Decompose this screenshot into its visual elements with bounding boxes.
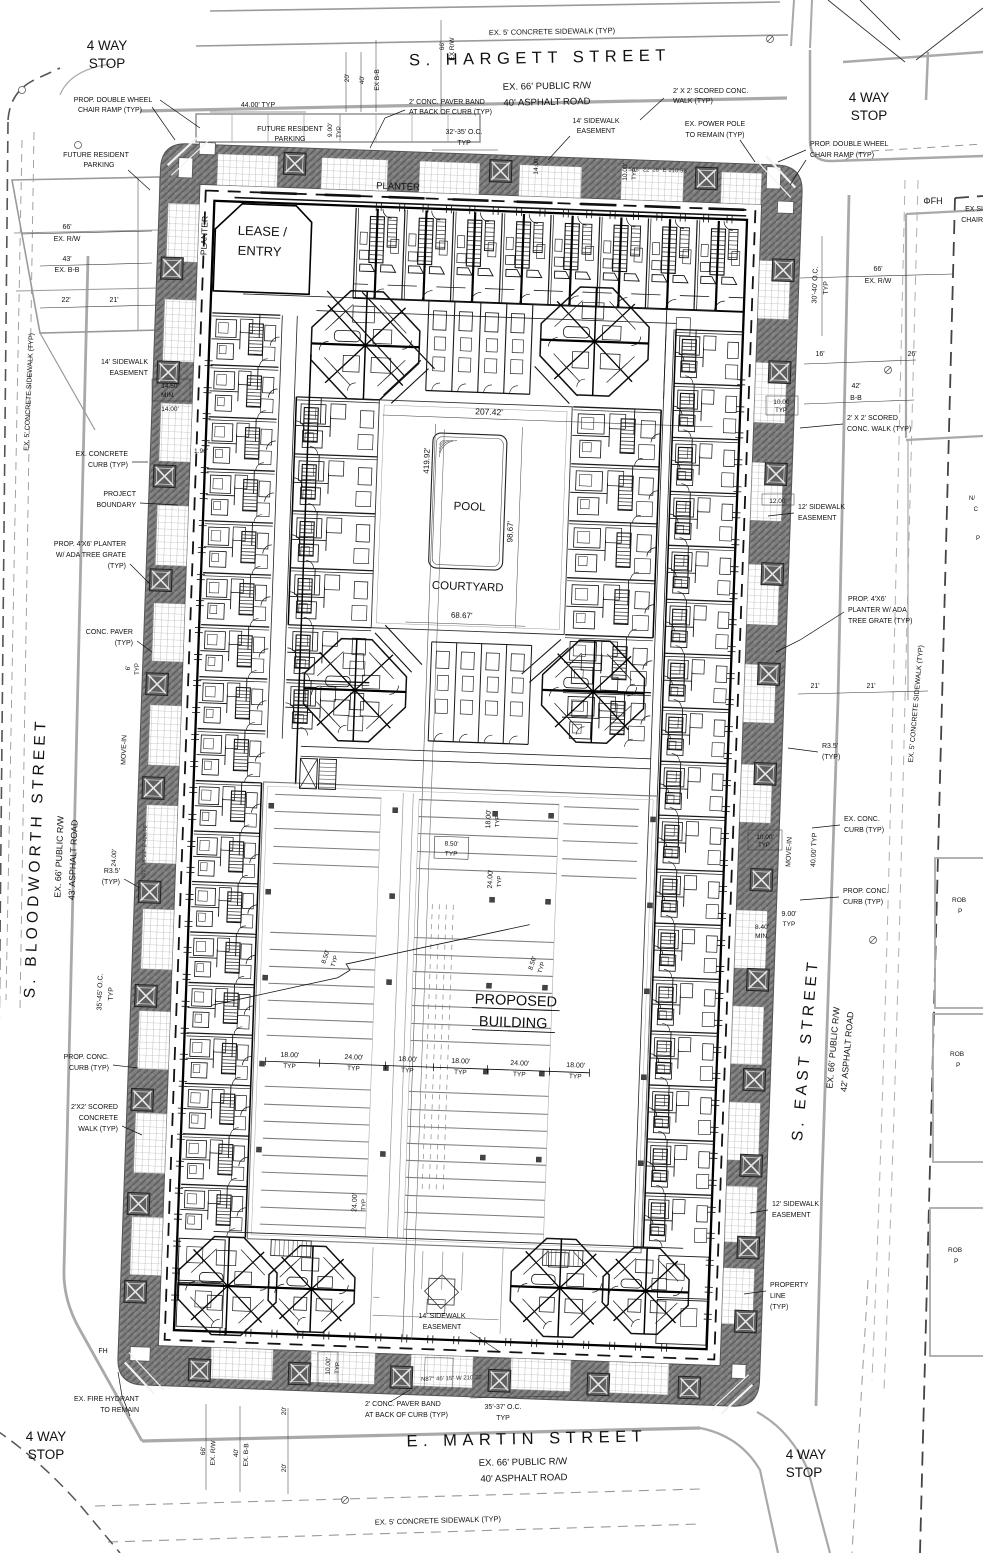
svg-text:4 WAY: 4 WAY [849, 90, 890, 105]
svg-text:2' CONC. PAVER BAND: 2' CONC. PAVER BAND [365, 1401, 441, 1408]
svg-text:R3.5': R3.5' [104, 868, 120, 875]
svg-text:(TYP): (TYP) [102, 879, 120, 886]
svg-text:EX SI: EX SI [965, 206, 983, 213]
svg-text:1.96': 1.96' [194, 448, 208, 455]
svg-text:POOL: POOL [453, 501, 486, 514]
svg-text:BUILDING: BUILDING [479, 1014, 548, 1032]
svg-text:P: P [958, 908, 962, 915]
svg-text:CONC. WALK (TYP): CONC. WALK (TYP) [847, 426, 911, 433]
svg-text:MOVE-IN: MOVE-IN [120, 735, 128, 765]
svg-text:40' ASPHALT ROAD: 40' ASPHALT ROAD [503, 96, 590, 109]
svg-text:EX. 66' PUBLIC R/W: EX. 66' PUBLIC R/W [503, 80, 592, 93]
svg-text:PROPERTY: PROPERTY [770, 1282, 809, 1289]
svg-text:32'-35' O.C.: 32'-35' O.C. [446, 129, 483, 136]
svg-text:PROP. CONC.: PROP. CONC. [843, 888, 888, 895]
svg-text:TREE GRATE (TYP): TREE GRATE (TYP) [848, 618, 912, 625]
svg-text:B-B: B-B [850, 395, 862, 402]
svg-text:21': 21' [109, 297, 118, 304]
svg-text:TYP: TYP [513, 1071, 526, 1078]
svg-text:PROP. 4'X6' PLANTER: PROP. 4'X6' PLANTER [54, 541, 126, 548]
svg-text:12' SIDEWALK: 12' SIDEWALK [798, 504, 845, 511]
svg-text:TYP: TYP [445, 851, 458, 858]
svg-text:CURB (TYP): CURB (TYP) [843, 899, 883, 906]
svg-text:40': 40' [359, 76, 366, 84]
svg-text:AT BACK OF CURB (TYP): AT BACK OF CURB (TYP) [409, 109, 492, 116]
svg-text:STOP: STOP [786, 1465, 823, 1480]
svg-text:LEASE /: LEASE / [238, 223, 288, 240]
svg-text:TYP: TYP [823, 281, 830, 295]
svg-text:4 WAY: 4 WAY [786, 1447, 827, 1462]
svg-text:66': 66' [439, 42, 446, 50]
svg-text:CONCRETE: CONCRETE [79, 1115, 119, 1122]
svg-text:PROJECT: PROJECT [103, 491, 136, 498]
svg-text:TO REMAIN (TYP): TO REMAIN (TYP) [686, 132, 745, 139]
svg-text:20': 20' [281, 1464, 288, 1473]
svg-text:9.00': 9.00' [327, 123, 334, 137]
svg-text:N/: N/ [969, 496, 975, 502]
svg-text:COURTYARD: COURTYARD [432, 580, 504, 595]
svg-text:18.00': 18.00' [280, 1052, 299, 1060]
svg-text:TYP: TYP [347, 1065, 360, 1072]
svg-text:14.50': 14.50' [161, 383, 179, 390]
svg-text:8.40': 8.40' [755, 924, 769, 931]
svg-text:14' SIDEWALK: 14' SIDEWALK [573, 118, 620, 125]
svg-text:26': 26' [907, 351, 916, 358]
svg-text:24.00': 24.00' [351, 1193, 359, 1212]
svg-text:CHAIR RAMP (TYP): CHAIR RAMP (TYP) [78, 107, 142, 114]
svg-text:WALK (TYP): WALK (TYP) [78, 1126, 118, 1133]
svg-text:PROP. DOUBLE WHEEL: PROP. DOUBLE WHEEL [810, 141, 889, 148]
svg-text:10.00': 10.00' [325, 1357, 333, 1375]
svg-text:419.92': 419.92' [422, 447, 432, 474]
svg-text:EX R/W: EX R/W [449, 37, 456, 61]
svg-text:66': 66' [62, 224, 71, 231]
svg-text:10.00': 10.00' [773, 399, 791, 406]
svg-text:EX. POWER POLE: EX. POWER POLE [685, 121, 746, 128]
svg-text:MIN.: MIN. [161, 392, 175, 399]
svg-text:35'-37' O.C.: 35'-37' O.C. [485, 1404, 522, 1411]
svg-text:PLANTER W/ ADA: PLANTER W/ ADA [848, 607, 907, 614]
svg-text:98.67': 98.67' [505, 520, 515, 542]
svg-text:PARKING: PARKING [275, 136, 306, 143]
svg-text:16': 16' [815, 351, 824, 358]
svg-text:40' ASPHALT ROAD: 40' ASPHALT ROAD [480, 1472, 567, 1485]
svg-text:20': 20' [344, 74, 351, 82]
svg-text:30'-40' O.C.: 30'-40' O.C. [811, 266, 819, 303]
svg-text:(TYP): (TYP) [822, 754, 840, 761]
svg-text:44.00' TYP: 44.00' TYP [241, 102, 276, 109]
svg-text:12.00': 12.00' [769, 498, 787, 505]
svg-text:21': 21' [810, 683, 819, 690]
svg-text:EASEMENT: EASEMENT [423, 1324, 462, 1331]
svg-text:W/ ADA TREE GRATE: W/ ADA TREE GRATE [56, 552, 126, 559]
svg-text:PROP. CONC.: PROP. CONC. [64, 1054, 109, 1061]
svg-text:40': 40' [233, 1449, 240, 1458]
svg-text:CHAIR RAMP (TYP): CHAIR RAMP (TYP) [810, 152, 874, 159]
svg-text:2' X 2' SCORED CONC.: 2' X 2' SCORED CONC. [673, 88, 748, 95]
svg-text:42': 42' [851, 383, 860, 390]
svg-text:12' SIDEWALK: 12' SIDEWALK [772, 1201, 819, 1208]
svg-text:TYP: TYP [361, 1199, 367, 1211]
svg-text:EX. CONCRETE: EX. CONCRETE [75, 451, 128, 458]
svg-text:FUTURE RESIDENT: FUTURE RESIDENT [63, 152, 129, 159]
svg-text:9.00': 9.00' [782, 911, 797, 918]
svg-text:CURB (TYP): CURB (TYP) [844, 827, 884, 834]
svg-text:TYP: TYP [775, 408, 787, 414]
svg-text:LINE: LINE [770, 1293, 786, 1300]
svg-text:(TYP): (TYP) [115, 640, 133, 647]
svg-text:TYP: TYP [783, 921, 796, 928]
svg-text:2' X 2' SCORED: 2' X 2' SCORED [847, 415, 898, 422]
svg-text:4 WAY: 4 WAY [87, 38, 128, 53]
svg-text:PLANTER: PLANTER [198, 216, 209, 256]
svg-text:EX. B-B: EX. B-B [55, 267, 80, 274]
svg-text:6': 6' [126, 666, 132, 670]
svg-text:STOP: STOP [89, 56, 126, 71]
svg-text:BOUNDARY: BOUNDARY [96, 502, 136, 509]
svg-text:14.00': 14.00' [161, 406, 179, 413]
svg-text:207.42': 207.42' [475, 406, 503, 417]
svg-text:ENTRY: ENTRY [237, 243, 282, 260]
svg-text:EASEMENT: EASEMENT [772, 1212, 811, 1219]
svg-text:(TYP): (TYP) [770, 1304, 788, 1311]
svg-text:EX. FIRE HYDRANT: EX. FIRE HYDRANT [74, 1396, 140, 1403]
svg-text:TYP: TYP [569, 1073, 582, 1080]
svg-text:14' SIDEWALK: 14' SIDEWALK [101, 359, 148, 366]
svg-text:4 WAY: 4 WAY [26, 1429, 67, 1444]
svg-text:2' CONC. PAVER BAND: 2' CONC. PAVER BAND [409, 99, 485, 106]
svg-text:P: P [976, 536, 980, 542]
svg-text:TO REMAIN: TO REMAIN [100, 1407, 139, 1414]
svg-text:FH: FH [98, 1348, 107, 1355]
svg-text:EASEMENT: EASEMENT [109, 370, 148, 377]
svg-text:CURB (TYP): CURB (TYP) [69, 1065, 109, 1072]
svg-text:EX B-B: EX B-B [374, 69, 381, 90]
svg-text:20': 20' [281, 1407, 288, 1416]
svg-text:2'X2' SCORED: 2'X2' SCORED [71, 1104, 118, 1111]
svg-text:14.00': 14.00' [533, 157, 541, 175]
svg-text:C: C [974, 507, 979, 513]
svg-text:CHAIR: CHAIR [961, 217, 983, 224]
svg-text:14' SIDEWALK: 14' SIDEWALK [419, 1313, 466, 1320]
svg-text:(TYP): (TYP) [108, 563, 126, 570]
svg-text:EX. 66' PUBLIC R/W: EX. 66' PUBLIC R/W [479, 1456, 568, 1469]
svg-text:CURB (TYP): CURB (TYP) [88, 462, 128, 469]
svg-text:EX. R/W: EX. R/W [210, 1440, 218, 1466]
svg-text:18.00': 18.00' [566, 1062, 585, 1070]
svg-text:10.00': 10.00' [756, 834, 774, 841]
svg-text:TYP: TYP [457, 140, 471, 147]
svg-text:CONC. PAVER: CONC. PAVER [86, 629, 133, 636]
svg-text:AT BACK OF CURB (TYP): AT BACK OF CURB (TYP) [365, 1412, 448, 1419]
svg-text:66': 66' [873, 266, 882, 273]
svg-text:TYP: TYP [401, 1067, 414, 1074]
svg-text:EASEMENT: EASEMENT [577, 128, 616, 135]
svg-text:R3.5': R3.5' [822, 743, 838, 750]
svg-text:68.67': 68.67' [451, 611, 473, 621]
svg-text:PARKING: PARKING [84, 162, 115, 169]
svg-text:EX. R/W: EX. R/W [865, 278, 892, 285]
svg-text:24.00': 24.00' [344, 1054, 363, 1062]
svg-text:18.00': 18.00' [398, 1056, 417, 1064]
svg-text:STOP: STOP [851, 108, 888, 123]
svg-text:PROP. 4'X6': PROP. 4'X6' [848, 596, 886, 603]
svg-text:35'-45' O.C.: 35'-45' O.C. [96, 973, 104, 1010]
svg-text:PROP. DOUBLE WHEEL: PROP. DOUBLE WHEEL [74, 97, 153, 104]
svg-text:ROB: ROB [948, 1247, 962, 1254]
svg-text:ROB: ROB [950, 1051, 964, 1058]
svg-text:18.00': 18.00' [485, 810, 493, 829]
svg-text:ΦFH: ΦFH [923, 196, 942, 206]
svg-text:STOP: STOP [28, 1447, 65, 1462]
svg-text:43': 43' [62, 256, 71, 263]
svg-text:TYP: TYP [108, 987, 115, 1001]
svg-text:TYP: TYP [283, 1063, 296, 1070]
svg-text:TYP: TYP [454, 1069, 467, 1076]
svg-text:TYP: TYP [758, 843, 770, 849]
svg-text:P: P [954, 1258, 958, 1265]
svg-text:24.00': 24.00' [487, 870, 495, 889]
svg-text:P: P [956, 1062, 960, 1069]
svg-text:TYP: TYP [495, 815, 501, 827]
svg-text:EX. B-B: EX. B-B [243, 1443, 251, 1466]
svg-text:FUTURE RESIDENT: FUTURE RESIDENT [257, 126, 323, 133]
svg-text:PLANTER: PLANTER [376, 181, 420, 194]
svg-text:TYP: TYP [497, 876, 503, 888]
svg-text:18.00': 18.00' [451, 1058, 470, 1066]
svg-text:ROB: ROB [952, 897, 966, 904]
svg-text:EX. CONC.: EX. CONC. [844, 816, 880, 823]
svg-text:EASEMENT: EASEMENT [798, 515, 837, 522]
svg-text:TYP: TYP [496, 1415, 510, 1422]
svg-text:TYP: TYP [335, 1362, 341, 1374]
svg-text:WALK (TYP): WALK (TYP) [673, 98, 713, 105]
svg-text:TYP: TYP [337, 126, 343, 138]
svg-text:22': 22' [61, 297, 70, 304]
svg-text:MIN.: MIN. [755, 933, 769, 940]
svg-text:24.00': 24.00' [111, 849, 119, 867]
svg-text:8.50': 8.50' [444, 840, 458, 847]
svg-text:TYP: TYP [135, 663, 141, 675]
svg-text:21': 21' [866, 683, 875, 690]
svg-text:24.00': 24.00' [510, 1060, 529, 1068]
svg-text:EX. R/W: EX. R/W [54, 236, 81, 243]
